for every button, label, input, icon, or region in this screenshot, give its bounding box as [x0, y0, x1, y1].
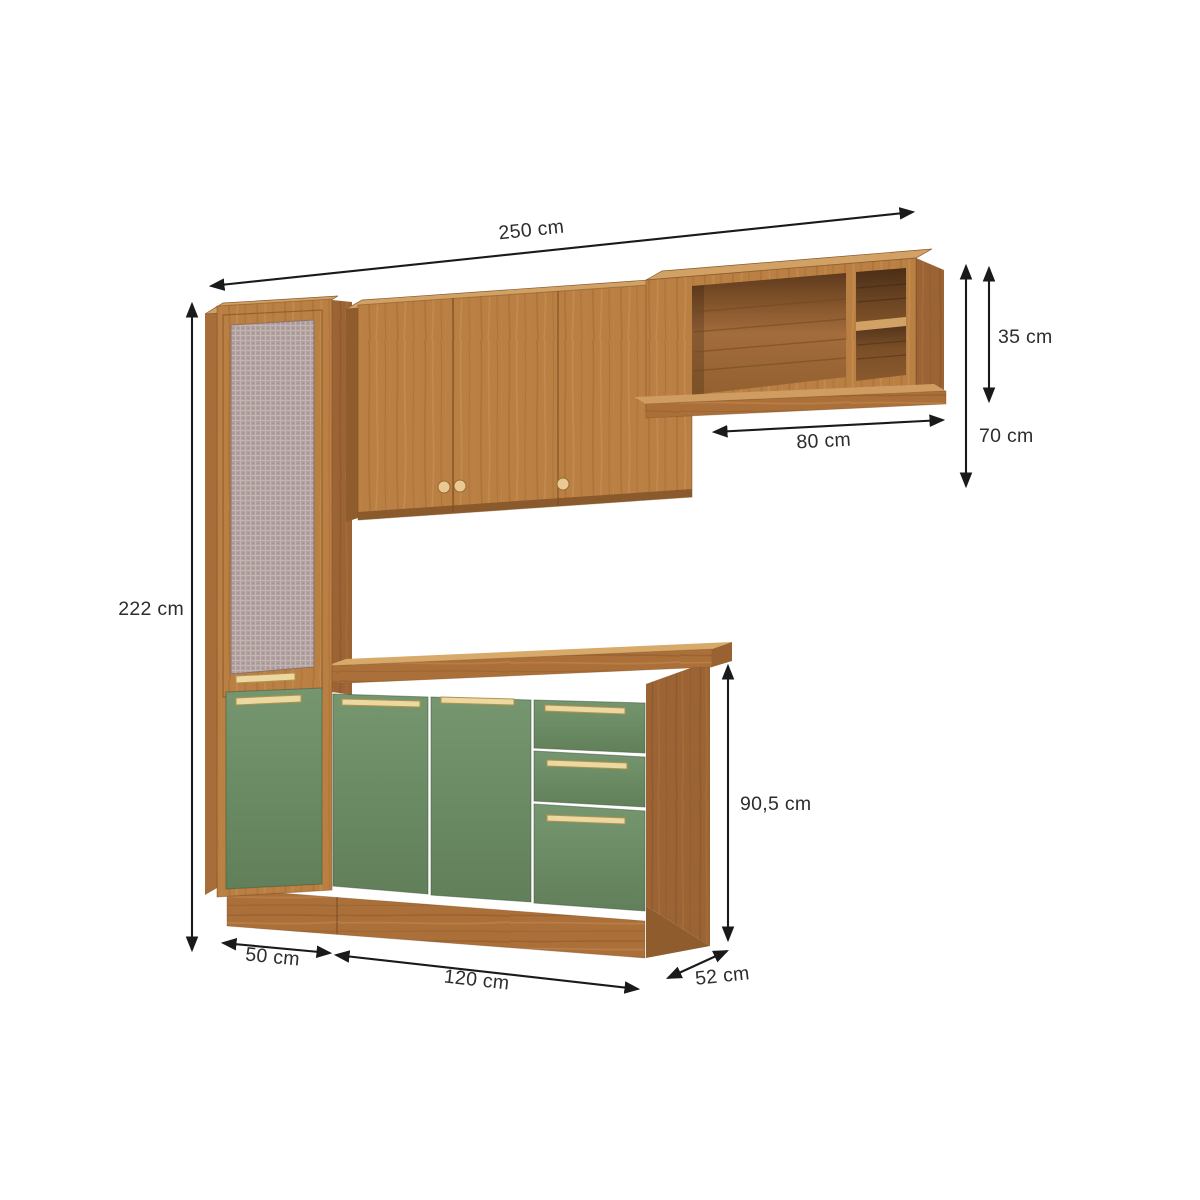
wall-cabinet-knob-1: [438, 481, 450, 493]
base-drawer-2: [534, 751, 645, 807]
shelf-module-open-compartment: [692, 273, 846, 395]
shelf-module-right-side: [916, 258, 944, 399]
base-right-side-panel: [646, 661, 710, 946]
base-door-left-handle: [342, 699, 420, 707]
shelf-module-upper-cubby: [856, 268, 906, 322]
tall-cabinet-green-door: [226, 688, 322, 889]
furniture-dimension-diagram: 250 cm 222 cm 35 cm 70 cm 80 cm 90,5 cm …: [0, 0, 1200, 1200]
wall-cabinet-left-edge: [346, 305, 358, 522]
dim-label-total-width: 250 cm: [498, 216, 566, 245]
wall-cabinet-knob-2: [454, 480, 466, 492]
dim-label-total-height: 222 cm: [118, 598, 184, 620]
wall-cabinet-knob-3: [557, 478, 569, 490]
dim-label-shelf-opening-width: 80 cm: [796, 429, 852, 454]
dim-label-tall-cabinet-width: 50 cm: [244, 943, 300, 970]
dim-label-depth: 52 cm: [694, 962, 751, 990]
shelf-compartment-left-shadow: [692, 285, 704, 395]
dim-label-base-height: 90,5 cm: [740, 793, 811, 815]
dim-label-upper-shelf-height: 35 cm: [998, 326, 1053, 348]
diagram-canvas: 250 cm 222 cm 35 cm 70 cm 80 cm 90,5 cm …: [0, 0, 1200, 1200]
dim-label-base-cabinet-width: 120 cm: [443, 965, 511, 994]
open-shelf-module: [634, 249, 946, 418]
base-door-right: [431, 697, 531, 902]
base-door-left: [333, 694, 428, 894]
base-door-right-handle: [441, 697, 514, 705]
tall-cabinet-left-edge: [205, 306, 217, 895]
shelf-module-lower-cubby: [856, 326, 906, 381]
dim-label-wall-section-height: 70 cm: [979, 425, 1034, 447]
tall-cabinet: [205, 296, 338, 897]
mesh-door-screen-panel: [231, 320, 314, 674]
